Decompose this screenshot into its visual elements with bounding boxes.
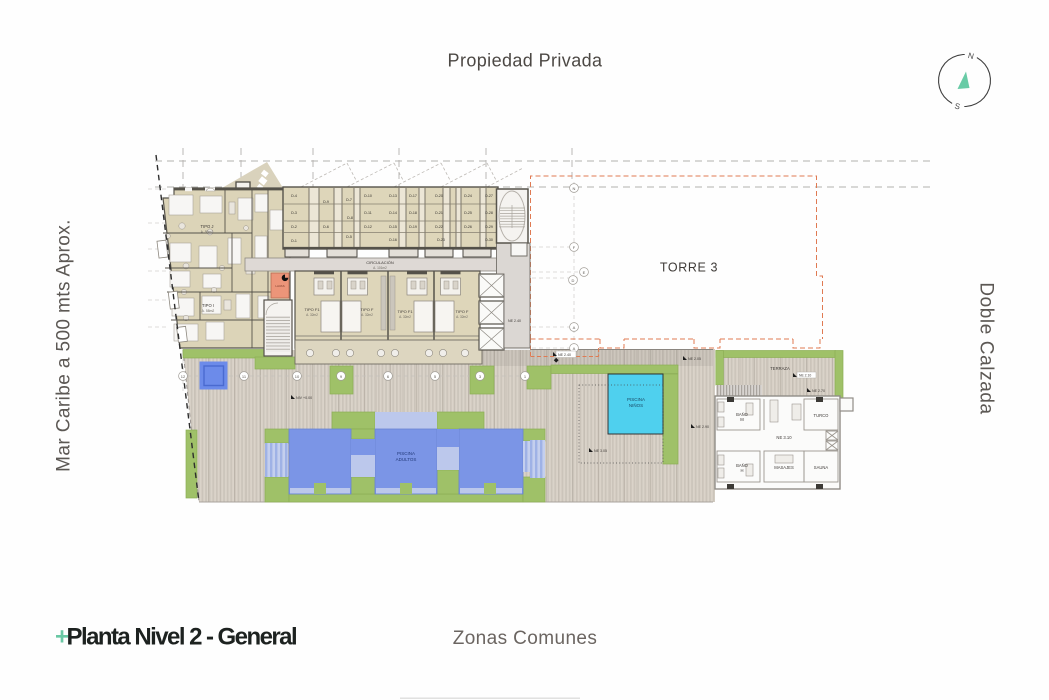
svg-text:D-2: D-2 xyxy=(291,225,297,229)
svg-text:TIPO F1: TIPO F1 xyxy=(397,309,413,314)
svg-text:PISCINA: PISCINA xyxy=(397,451,415,456)
svg-text:D-19: D-19 xyxy=(409,225,417,229)
svg-text:Doble Calzada: Doble Calzada xyxy=(976,282,997,414)
svg-text:D-23: D-23 xyxy=(437,238,445,242)
svg-text:PISCINA: PISCINA xyxy=(627,397,645,402)
svg-text:NE 3.10: NE 3.10 xyxy=(776,435,792,440)
svg-text:D-24: D-24 xyxy=(464,194,472,198)
svg-text:TIPO F: TIPO F xyxy=(361,307,374,312)
svg-text:D: D xyxy=(572,278,575,283)
svg-text:D-11: D-11 xyxy=(364,211,372,215)
svg-text:D-6: D-6 xyxy=(323,225,329,229)
svg-text:A. 99m2: A. 99m2 xyxy=(201,230,214,234)
svg-text:SAUNA: SAUNA xyxy=(814,465,829,470)
svg-text:D-13: D-13 xyxy=(389,194,397,198)
svg-text:NE 3.05: NE 3.05 xyxy=(594,449,607,453)
svg-text:TIPO F1: TIPO F1 xyxy=(304,307,320,312)
svg-text:10: 10 xyxy=(295,374,300,379)
svg-text:H: H xyxy=(740,468,743,473)
svg-text:A. 58m2: A. 58m2 xyxy=(202,309,215,313)
svg-text:A. 101m2: A. 101m2 xyxy=(373,266,387,270)
svg-text:D-10: D-10 xyxy=(364,194,372,198)
svg-text:LAVAS: LAVAS xyxy=(275,284,284,288)
svg-text:A: A xyxy=(573,325,576,330)
svg-text:ADULTOS: ADULTOS xyxy=(396,457,417,462)
svg-text:TERRAZA: TERRAZA xyxy=(770,366,790,371)
svg-text:A. 32m2: A. 32m2 xyxy=(361,313,373,317)
svg-text:D-28: D-28 xyxy=(485,211,493,215)
svg-text:E: E xyxy=(583,270,586,275)
svg-text:Propiedad Privada: Propiedad Privada xyxy=(448,51,603,71)
svg-text:D-25: D-25 xyxy=(464,211,472,215)
svg-text:Planta Nivel 2 - General: Planta Nivel 2 - General xyxy=(67,624,297,651)
svg-text:D-30: D-30 xyxy=(485,238,493,242)
svg-text:M: M xyxy=(740,417,744,422)
svg-text:D-29: D-29 xyxy=(485,225,493,229)
svg-text:D-1: D-1 xyxy=(291,239,297,243)
svg-text:D-12: D-12 xyxy=(364,225,372,229)
svg-text:D-16: D-16 xyxy=(389,238,397,242)
svg-text:NE 2.40: NE 2.40 xyxy=(508,319,521,323)
svg-text:TIPO F: TIPO F xyxy=(456,309,469,314)
svg-text:TIPO J: TIPO J xyxy=(200,224,213,229)
svg-text:NE 2.10: NE 2.10 xyxy=(799,374,811,378)
svg-text:D-20: D-20 xyxy=(435,194,443,198)
svg-text:D-8: D-8 xyxy=(347,216,353,220)
svg-text:D-15: D-15 xyxy=(389,225,397,229)
svg-text:MASAJES: MASAJES xyxy=(774,465,794,470)
svg-text:Mar Caribe a 500 mts Aprox.: Mar Caribe a 500 mts Aprox. xyxy=(54,219,75,472)
svg-text:NE 2.90: NE 2.90 xyxy=(696,425,709,429)
svg-text:A: A xyxy=(573,346,576,351)
svg-text:D-22: D-22 xyxy=(435,225,443,229)
svg-text:D-4: D-4 xyxy=(291,194,297,198)
svg-text:TURCO: TURCO xyxy=(814,413,830,418)
svg-text:12: 12 xyxy=(181,374,186,379)
svg-text:NE 2.70: NE 2.70 xyxy=(812,389,825,393)
svg-text:CIRCULACIÓN: CIRCULACIÓN xyxy=(366,260,394,265)
svg-text:NIV +0.00: NIV +0.00 xyxy=(296,396,312,400)
svg-text:A. 32m2: A. 32m2 xyxy=(456,315,468,319)
svg-text:D-5: D-5 xyxy=(346,235,352,239)
svg-text:Zonas Comunes: Zonas Comunes xyxy=(453,628,598,649)
svg-text:TIPO I: TIPO I xyxy=(202,303,214,308)
svg-text:D-14: D-14 xyxy=(389,211,397,215)
svg-text:N: N xyxy=(573,186,576,191)
svg-text:A. 32m2: A. 32m2 xyxy=(399,315,411,319)
svg-text:D-17: D-17 xyxy=(409,194,417,198)
svg-text:A. 32m2: A. 32m2 xyxy=(306,313,318,317)
svg-text:D-7: D-7 xyxy=(346,198,352,202)
svg-text:D-27: D-27 xyxy=(485,194,493,198)
svg-text:NE 2.05: NE 2.05 xyxy=(688,357,701,361)
svg-text:TORRE 3: TORRE 3 xyxy=(660,261,718,275)
svg-text:D-26: D-26 xyxy=(464,225,472,229)
svg-text:NIÑOS: NIÑOS xyxy=(629,402,643,408)
svg-text:D-18: D-18 xyxy=(409,211,417,215)
svg-text:D-21: D-21 xyxy=(435,211,443,215)
svg-text:D-9: D-9 xyxy=(323,200,329,204)
svg-text:D-3: D-3 xyxy=(291,211,297,215)
svg-text:NE 2.40: NE 2.40 xyxy=(558,353,571,357)
